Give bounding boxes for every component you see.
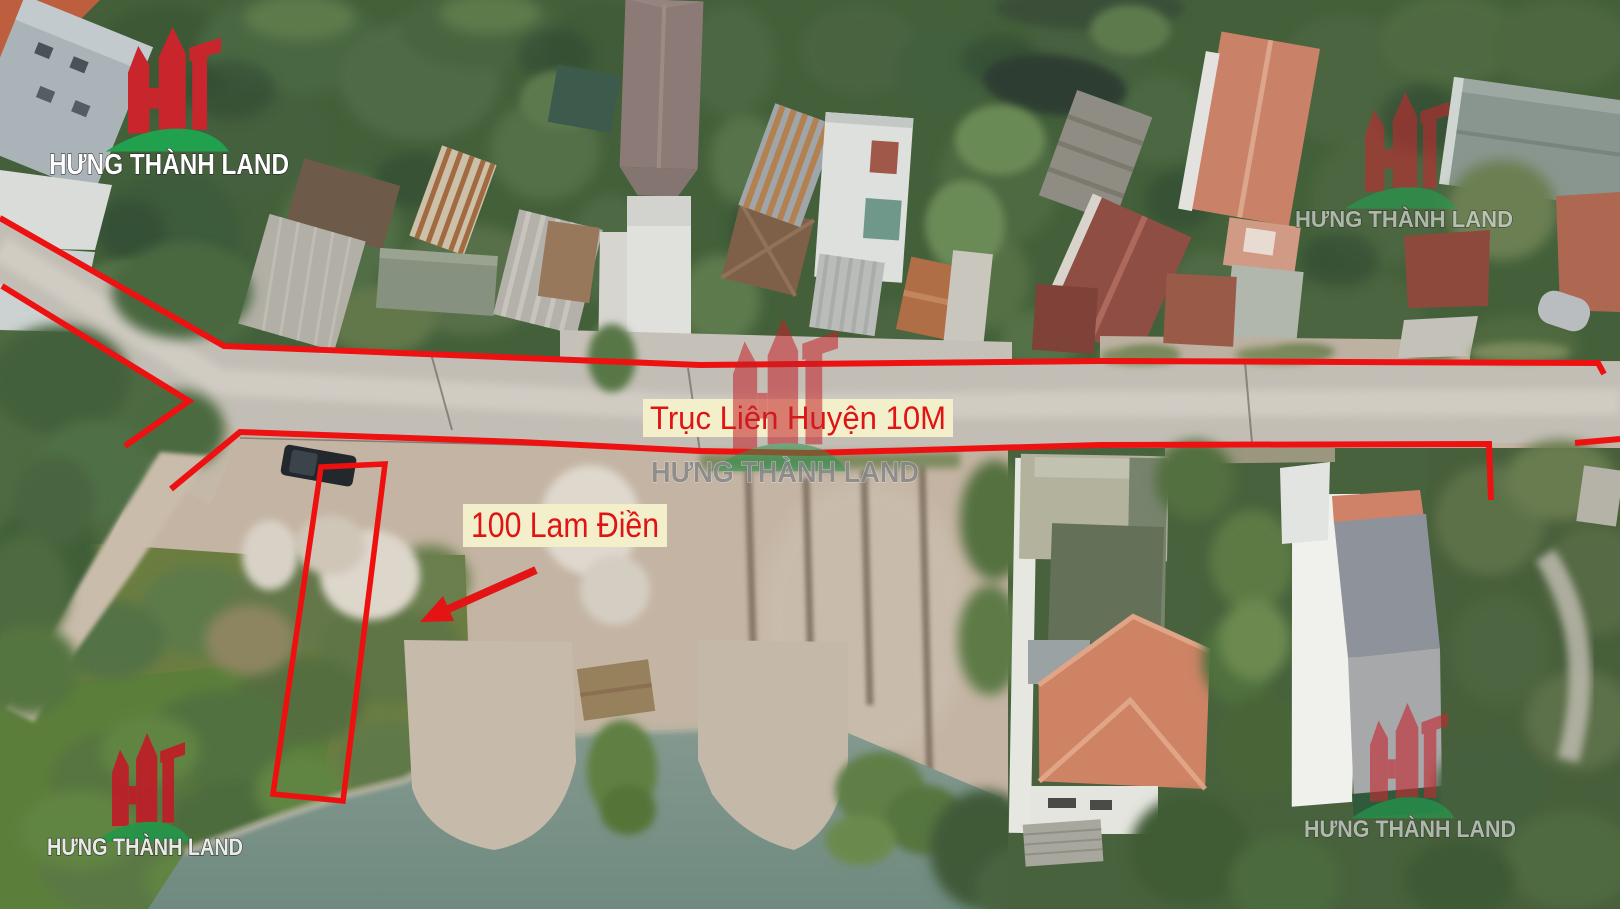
svg-text:HƯNG THÀNH LAND: HƯNG THÀNH LAND (47, 833, 243, 861)
svg-text:HƯNG THÀNH LAND: HƯNG THÀNH LAND (1304, 815, 1516, 843)
svg-text:HƯNG THÀNH LAND: HƯNG THÀNH LAND (49, 147, 289, 181)
svg-text:HƯNG THÀNH LAND: HƯNG THÀNH LAND (651, 455, 919, 489)
svg-text:HƯNG THÀNH LAND: HƯNG THÀNH LAND (1295, 205, 1513, 232)
svg-text:100 Lam Điền: 100 Lam Điền (471, 506, 659, 545)
